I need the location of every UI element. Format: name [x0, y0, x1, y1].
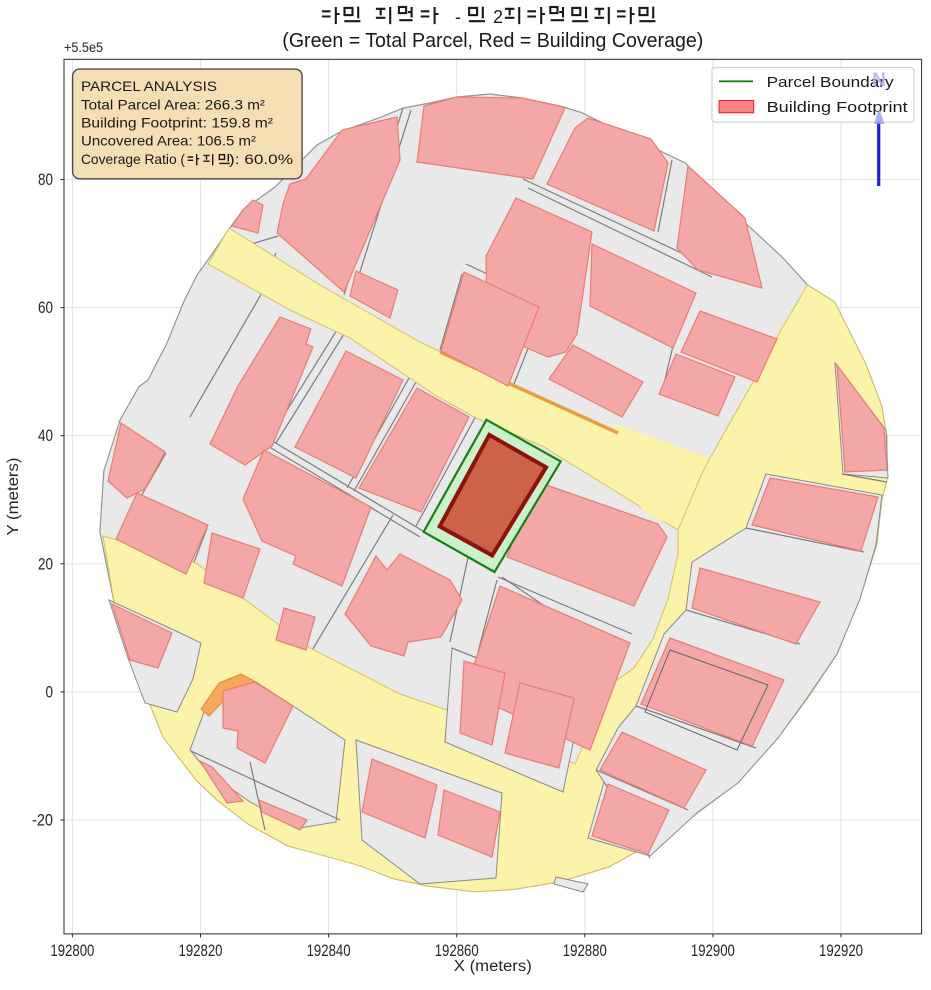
- svg-text:0: 0: [46, 683, 54, 701]
- svg-text:Total Parcel Area: 266.3 m²: Total Parcel Area: 266.3 m²: [81, 97, 265, 113]
- svg-text:192900: 192900: [691, 942, 735, 960]
- svg-text:PARCEL ANALYSIS: PARCEL ANALYSIS: [81, 78, 217, 94]
- svg-text:(Green = Total Parcel, Red = B: (Green = Total Parcel, Red = Building Co…: [282, 30, 703, 52]
- svg-text:): 60.0%: ): 60.0%: [229, 151, 293, 167]
- svg-text:+5.5e5: +5.5e5: [64, 40, 103, 55]
- svg-text:-: -: [455, 7, 461, 27]
- svg-text:192800: 192800: [50, 942, 94, 960]
- svg-text:Building Footprint: 159.8 m²: Building Footprint: 159.8 m²: [81, 115, 273, 131]
- svg-text:192840: 192840: [307, 942, 351, 960]
- svg-text:60: 60: [38, 299, 53, 317]
- svg-text:2: 2: [493, 7, 503, 27]
- svg-text:20: 20: [38, 555, 53, 573]
- svg-text:192920: 192920: [819, 942, 863, 960]
- svg-text:X (meters): X (meters): [454, 958, 532, 975]
- svg-text:80: 80: [38, 171, 53, 189]
- svg-text:192820: 192820: [179, 942, 223, 960]
- svg-text:Uncovered Area: 106.5 m²: Uncovered Area: 106.5 m²: [81, 133, 256, 149]
- svg-text:Coverage Ratio (: Coverage Ratio (: [81, 151, 185, 167]
- svg-text:N: N: [872, 70, 886, 91]
- svg-text:-20: -20: [32, 812, 53, 830]
- svg-text:40: 40: [38, 427, 53, 445]
- svg-text:Building Footprint: Building Footprint: [767, 99, 909, 116]
- svg-text:Y (meters): Y (meters): [5, 458, 22, 536]
- svg-text:192880: 192880: [563, 942, 607, 960]
